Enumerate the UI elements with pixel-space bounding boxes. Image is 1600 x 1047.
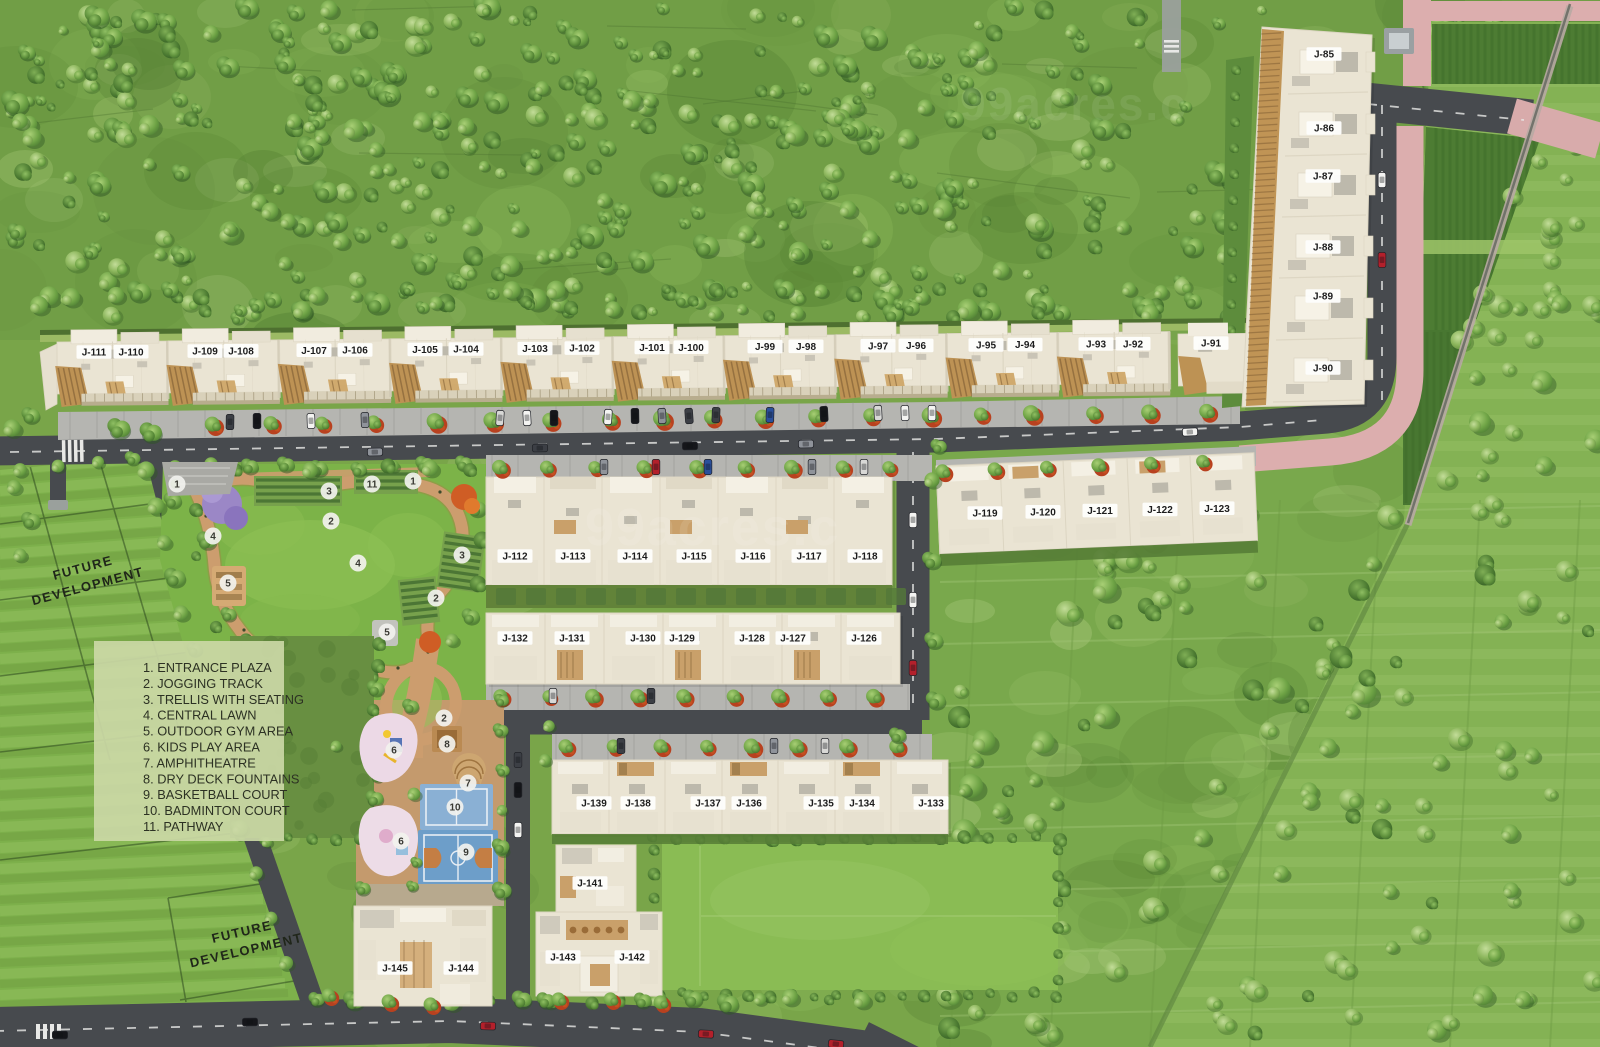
svg-text:4: 4 — [355, 559, 361, 570]
svg-text:J-133: J-133 — [918, 799, 944, 810]
svg-text:9: 9 — [463, 848, 469, 859]
svg-text:8: 8 — [444, 740, 450, 751]
svg-text:J-109: J-109 — [192, 347, 218, 358]
svg-text:J-94: J-94 — [1015, 340, 1035, 351]
svg-text:J-129: J-129 — [669, 634, 695, 645]
svg-text:J-115: J-115 — [681, 552, 706, 563]
svg-text:J-135: J-135 — [808, 799, 834, 810]
svg-text:J-100: J-100 — [678, 343, 704, 354]
svg-text:J-91: J-91 — [1201, 339, 1221, 350]
svg-text:J-110: J-110 — [118, 347, 143, 358]
svg-text:1. ENTRANCE PLAZA: 1. ENTRANCE PLAZA — [143, 660, 272, 675]
svg-text:J-86: J-86 — [1314, 124, 1334, 135]
svg-text:2. JOGGING TRACK: 2. JOGGING TRACK — [143, 676, 263, 691]
svg-text:J-116: J-116 — [740, 552, 765, 563]
svg-text:J-117: J-117 — [796, 552, 821, 563]
svg-text:J-143: J-143 — [550, 953, 576, 964]
svg-text:9. BASKETBALL COURT: 9. BASKETBALL COURT — [143, 787, 288, 802]
svg-text:J-122: J-122 — [1147, 505, 1173, 516]
svg-text:7: 7 — [465, 779, 471, 790]
svg-text:J-96: J-96 — [906, 341, 926, 352]
svg-text:J-105: J-105 — [412, 345, 438, 356]
svg-text:J-145: J-145 — [382, 964, 408, 975]
svg-text:J-104: J-104 — [453, 345, 479, 356]
svg-text:J-137: J-137 — [695, 799, 721, 810]
svg-text:J-141: J-141 — [577, 879, 603, 890]
svg-text:J-126: J-126 — [851, 634, 877, 645]
svg-text:2: 2 — [328, 517, 334, 528]
svg-text:1: 1 — [174, 480, 180, 491]
svg-text:J-95: J-95 — [976, 341, 996, 352]
svg-text:J-139: J-139 — [581, 799, 607, 810]
svg-text:J-90: J-90 — [1313, 364, 1333, 375]
svg-text:5: 5 — [384, 628, 390, 639]
svg-text:J-103: J-103 — [522, 344, 548, 355]
svg-text:J-113: J-113 — [560, 552, 585, 563]
svg-text:J-85: J-85 — [1314, 50, 1334, 61]
svg-text:J-87: J-87 — [1313, 172, 1333, 183]
svg-text:J-102: J-102 — [569, 344, 595, 355]
svg-text:3: 3 — [459, 551, 465, 562]
svg-text:2: 2 — [433, 594, 439, 605]
svg-text:6. KIDS PLAY AREA: 6. KIDS PLAY AREA — [143, 740, 260, 755]
svg-text:J-128: J-128 — [739, 634, 765, 645]
svg-text:J-107: J-107 — [301, 346, 327, 357]
svg-text:J-98: J-98 — [796, 342, 816, 353]
svg-text:J-132: J-132 — [502, 634, 528, 645]
svg-text:2: 2 — [441, 714, 447, 725]
svg-text:10. BADMINTON COURT: 10. BADMINTON COURT — [143, 803, 290, 818]
svg-text:4. CENTRAL LAWN: 4. CENTRAL LAWN — [143, 708, 257, 723]
svg-text:3. TRELLIS WITH SEATING: 3. TRELLIS WITH SEATING — [143, 692, 304, 707]
svg-text:J-101: J-101 — [639, 343, 665, 354]
svg-text:J-106: J-106 — [342, 346, 368, 357]
svg-text:5. OUTDOOR GYM AREA: 5. OUTDOOR GYM AREA — [143, 724, 293, 739]
svg-text:J-130: J-130 — [630, 634, 656, 645]
svg-text:J-97: J-97 — [868, 341, 888, 352]
svg-text:J-111: J-111 — [82, 348, 107, 359]
svg-text:11. PATHWAY: 11. PATHWAY — [143, 819, 224, 834]
svg-text:99acres.c: 99acres.c — [960, 78, 1188, 130]
svg-text:3: 3 — [326, 487, 332, 498]
svg-text:J-89: J-89 — [1313, 292, 1333, 303]
svg-text:J-120: J-120 — [1030, 507, 1056, 518]
svg-text:6: 6 — [398, 837, 404, 848]
svg-text:J-92: J-92 — [1123, 339, 1143, 350]
svg-text:4: 4 — [210, 532, 216, 543]
svg-text:J-99: J-99 — [755, 342, 775, 353]
svg-text:J-136: J-136 — [736, 799, 762, 810]
svg-text:J-123: J-123 — [1204, 504, 1230, 515]
svg-text:J-118: J-118 — [852, 552, 877, 563]
svg-text:8. DRY DECK FOUNTAINS: 8. DRY DECK FOUNTAINS — [143, 771, 299, 786]
svg-text:6: 6 — [391, 746, 397, 757]
svg-text:5: 5 — [225, 579, 231, 590]
svg-text:10: 10 — [449, 803, 461, 814]
svg-text:J-138: J-138 — [625, 799, 651, 810]
svg-text:7. AMPHITHEATRE: 7. AMPHITHEATRE — [143, 755, 256, 770]
svg-text:J-119: J-119 — [972, 509, 997, 520]
svg-text:99acres.c: 99acres.c — [585, 499, 840, 557]
svg-text:J-127: J-127 — [780, 634, 806, 645]
svg-text:J-108: J-108 — [228, 346, 254, 357]
svg-text:J-88: J-88 — [1313, 243, 1333, 254]
svg-text:J-142: J-142 — [619, 953, 645, 964]
svg-text:J-131: J-131 — [559, 634, 585, 645]
svg-text:11: 11 — [367, 480, 378, 491]
svg-text:J-112: J-112 — [502, 552, 527, 563]
svg-text:J-93: J-93 — [1086, 340, 1106, 351]
svg-text:J-134: J-134 — [849, 799, 875, 810]
svg-text:J-144: J-144 — [448, 964, 474, 975]
svg-text:J-114: J-114 — [622, 552, 647, 563]
svg-text:J-121: J-121 — [1087, 506, 1113, 517]
svg-text:1: 1 — [410, 477, 416, 488]
